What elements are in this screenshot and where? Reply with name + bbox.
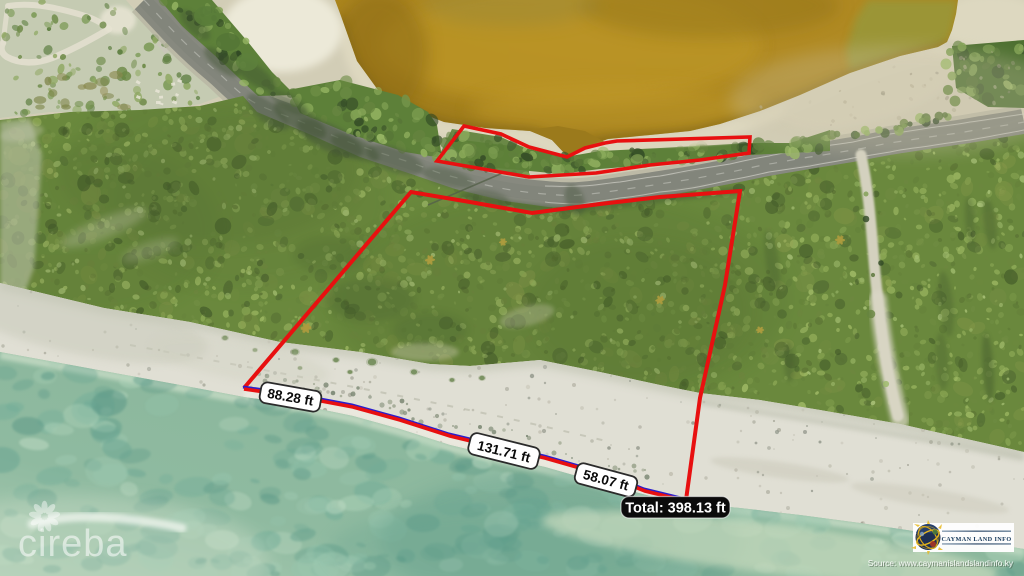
svg-text:Total: 398.13 ft: Total: 398.13 ft	[625, 501, 726, 517]
svg-text:CAYMAN LAND INFO: CAYMAN LAND INFO	[941, 536, 1011, 543]
svg-text:cireba: cireba	[18, 523, 128, 565]
svg-text:Source: www.caymanislandslandi: Source: www.caymanislandslandinfo.ky	[868, 558, 1014, 568]
